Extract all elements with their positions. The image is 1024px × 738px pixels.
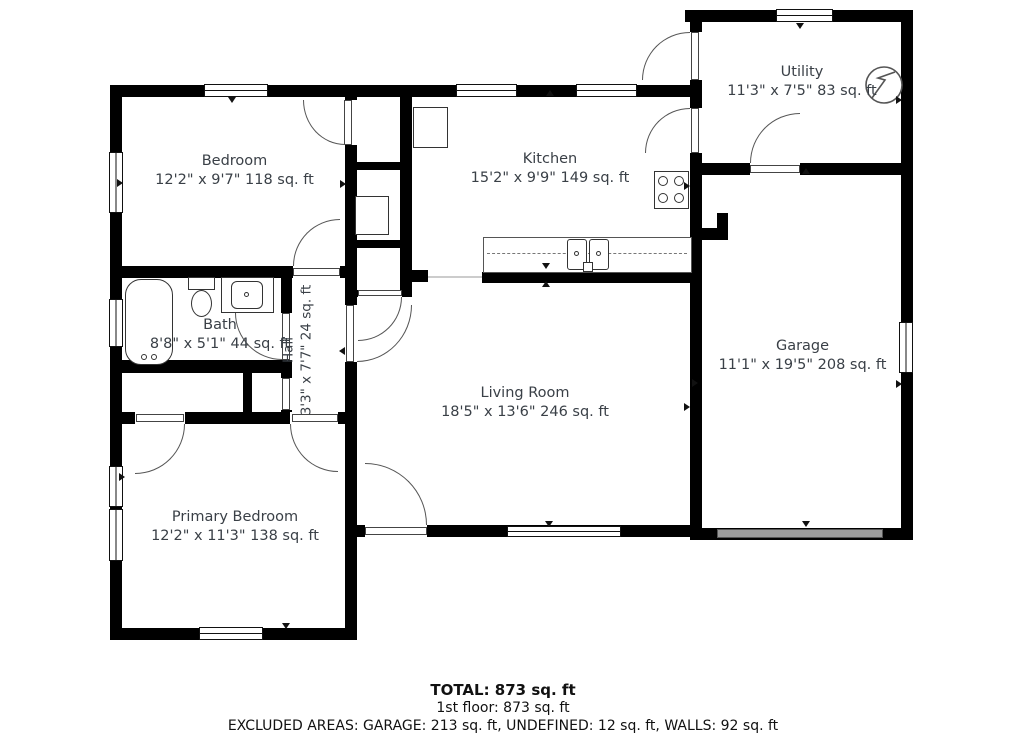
room-dims: 11'3" x 7'5" 83 sq. ft <box>712 82 892 101</box>
stove-burner <box>674 176 684 186</box>
dimension-arrow <box>228 97 236 103</box>
room-label-primary-bedroom: Primary Bedroom 12'2" x 11'3" 138 sq. ft <box>120 508 350 546</box>
wall <box>482 272 692 283</box>
room-dims: 11'1" x 19'5" 208 sq. ft <box>710 356 895 375</box>
room-name: Kitchen <box>430 150 670 169</box>
window <box>507 526 621 537</box>
room-label-living-room: Living Room 18'5" x 13'6" 246 sq. ft <box>380 384 670 422</box>
stove-burner <box>674 193 684 203</box>
door-swing-arc <box>365 463 427 525</box>
room-name: Garage <box>710 337 895 356</box>
dimension-arrow <box>692 379 698 387</box>
door-swing-arc <box>750 113 800 163</box>
wall <box>243 373 252 412</box>
dimension-arrow <box>545 521 553 527</box>
dimension-arrow <box>796 23 804 29</box>
sink-faucet <box>596 251 601 256</box>
water-heater <box>355 196 389 235</box>
door-swing-arc <box>290 424 338 472</box>
window <box>204 84 268 97</box>
room-dims: 15'2" x 9'9" 149 sq. ft <box>430 169 670 188</box>
window <box>576 84 637 97</box>
room-name: Utility <box>712 63 892 82</box>
dimension-arrow <box>684 182 690 190</box>
door-leaf <box>691 108 699 153</box>
window <box>776 9 833 22</box>
door-swing-arc <box>645 108 690 153</box>
room-label-utility: Utility 11'3" x 7'5" 83 sq. ft <box>712 63 892 101</box>
first-floor-area: 1st floor: 873 sq. ft <box>63 699 943 717</box>
door-swing-arc <box>135 424 185 474</box>
door-swing-arc <box>303 100 345 145</box>
window <box>899 322 913 373</box>
dimension-arrow <box>542 281 550 287</box>
room-name: Primary Bedroom <box>120 508 350 527</box>
dimension-arrow <box>282 623 290 629</box>
door-swing-arc <box>642 32 690 80</box>
door-leaf <box>358 290 402 296</box>
room-name: Living Room <box>380 384 670 403</box>
kitchen-tap <box>583 262 593 272</box>
threshold <box>428 276 482 278</box>
dimension-arrow <box>802 521 810 527</box>
dimension-arrow <box>802 168 810 174</box>
refrigerator <box>413 107 448 148</box>
toilet <box>191 290 212 317</box>
dimension-arrow <box>119 473 125 481</box>
toilet <box>188 277 215 290</box>
room-label-hall: Hall 3'3" x 7'7" 24 sq. ft <box>280 273 344 428</box>
area-summary: TOTAL: 873 sq. ft 1st floor: 873 sq. ft … <box>63 681 943 735</box>
wall <box>345 162 412 170</box>
wall <box>717 213 728 240</box>
sink-faucet <box>574 251 579 256</box>
window <box>199 627 263 640</box>
room-name: Hall <box>280 273 298 428</box>
excluded-areas: EXCLUDED AREAS: GARAGE: 213 sq. ft, UNDE… <box>63 717 943 735</box>
wall <box>400 97 412 297</box>
door-leaf <box>346 305 354 362</box>
wall <box>345 240 412 248</box>
door-leaf <box>344 100 352 145</box>
wall <box>412 270 428 282</box>
dimension-arrow <box>684 403 690 411</box>
sink-faucet <box>244 292 249 297</box>
room-label-kitchen: Kitchen 15'2" x 9'9" 149 sq. ft <box>430 150 670 188</box>
room-dims: 3'3" x 7'7" 24 sq. ft <box>298 273 316 428</box>
garage-door <box>717 529 883 538</box>
dimension-arrow <box>542 263 550 269</box>
room-dims: 12'2" x 9'7" 118 sq. ft <box>122 171 347 190</box>
stove-burner <box>658 193 668 203</box>
door-leaf <box>691 32 699 80</box>
door-leaf <box>365 527 427 535</box>
bathtub-faucet <box>141 354 147 360</box>
floor-plan: Bedroom 12'2" x 9'7" 118 sq. ft Kitchen … <box>0 0 1024 738</box>
upper-cabinet-line <box>487 253 687 254</box>
room-label-garage: Garage 11'1" x 19'5" 208 sq. ft <box>710 337 895 375</box>
door-swing-arc <box>293 219 340 266</box>
dimension-arrow <box>896 96 902 104</box>
room-name: Bedroom <box>122 152 347 171</box>
door-leaf <box>136 414 184 422</box>
room-dims: 12'2" x 11'3" 138 sq. ft <box>120 527 350 546</box>
dimension-arrow <box>896 380 902 388</box>
bathtub-faucet <box>151 354 157 360</box>
window <box>456 84 517 97</box>
window <box>109 299 123 347</box>
total-area: TOTAL: 873 sq. ft <box>63 681 943 699</box>
room-label-bedroom: Bedroom 12'2" x 9'7" 118 sq. ft <box>122 152 347 190</box>
door-leaf <box>750 165 800 173</box>
room-dims: 18'5" x 13'6" 246 sq. ft <box>380 403 670 422</box>
dimension-arrow <box>546 90 554 96</box>
